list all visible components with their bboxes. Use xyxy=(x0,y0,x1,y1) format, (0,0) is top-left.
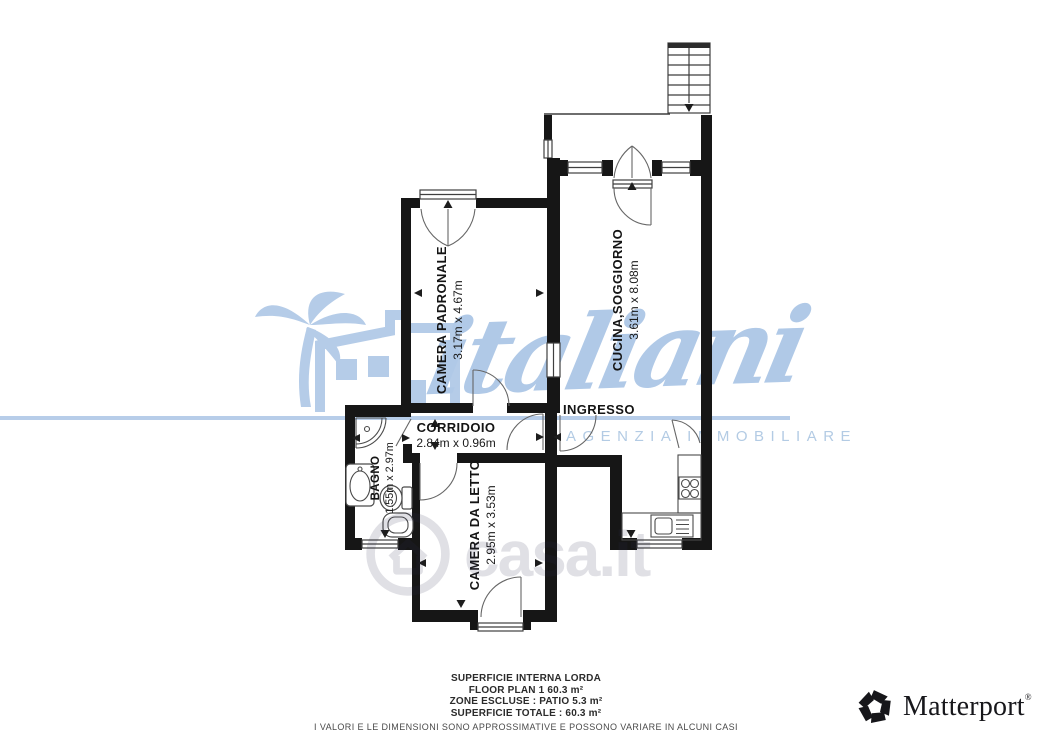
shower xyxy=(356,418,386,448)
door-bagno xyxy=(396,419,411,446)
floorplan-page: italiani AGENZIA IMMOBILIARE xyxy=(0,0,1052,744)
casa-house-icon xyxy=(362,508,454,600)
matterport-branding: Matterport® xyxy=(856,688,1032,726)
matterport-wordmark: Matterport® xyxy=(903,691,1032,723)
label-cucina-soggiorno: CUCINA,SOGGIORNO 3.61m x 8.08m xyxy=(610,229,641,371)
room-dims: 1.55m x 2.97m xyxy=(384,442,396,513)
patio-outline xyxy=(544,114,670,158)
room-name: CAMERA PADRONALE xyxy=(434,246,449,394)
room-dims: 3.61m x 8.08m xyxy=(627,260,641,339)
registered-mark: ® xyxy=(1025,692,1032,702)
room-dims: 2.84m x 0.96m xyxy=(416,436,495,450)
room-name: BAGNO xyxy=(370,456,382,501)
label-ingresso: INGRESSO xyxy=(563,402,635,417)
room-name: CUCINA,SOGGIORNO xyxy=(610,229,625,371)
door-bedroom xyxy=(420,463,457,500)
staircase xyxy=(668,43,710,113)
kitchen-sink xyxy=(651,515,693,537)
matterport-name: Matterport xyxy=(903,691,1025,722)
matterport-icon xyxy=(856,688,894,726)
room-name: INGRESSO xyxy=(563,402,635,417)
room-name: CORRIDOIO xyxy=(417,420,496,435)
french-door-padronale xyxy=(421,209,475,246)
floorplan-drawing: CAMERA PADRONALE 3.17m x 4.67m CUCINA,SO… xyxy=(0,0,1052,744)
label-camera-padronale: CAMERA PADRONALE 3.17m x 4.67m xyxy=(434,246,465,394)
listing-site-watermark: casa.it xyxy=(362,508,649,600)
listing-site-name: casa.it xyxy=(464,522,649,586)
entrance-door xyxy=(672,420,700,448)
summary-line: SUPERFICIE INTERNA LORDA xyxy=(0,673,1052,685)
label-corridoio: CORRIDOIO 2.84m x 0.96m xyxy=(416,420,495,450)
door-padronale-corridor xyxy=(473,370,509,406)
hob xyxy=(679,477,701,499)
room-dims: 3.17m x 4.67m xyxy=(451,280,465,359)
